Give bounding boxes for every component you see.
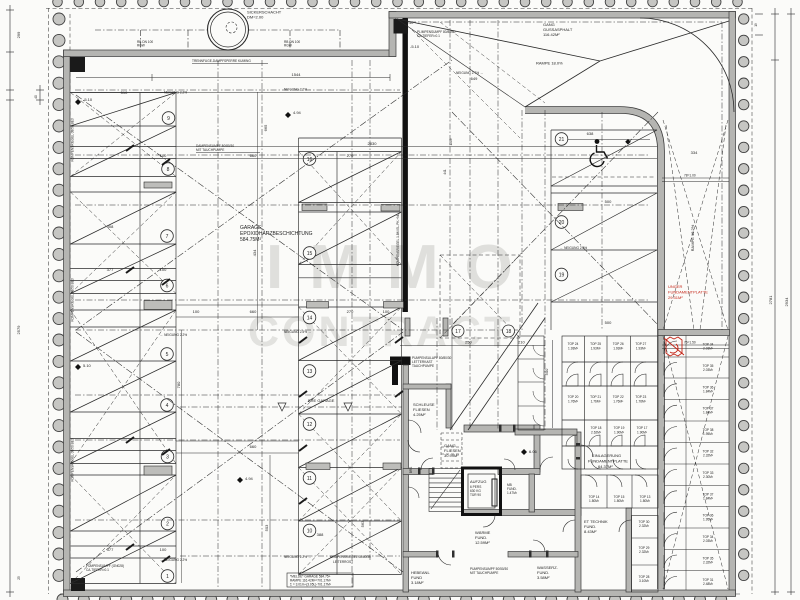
svg-text:6: 6 (166, 284, 169, 290)
svg-text:← NEIGUNG 2.5%: ← NEIGUNG 2.5% (560, 246, 587, 250)
svg-text:100: 100 (193, 309, 200, 314)
svg-text:RAMPE 18.2%: RAMPE 18.2% (690, 224, 695, 251)
svg-text:15: 15 (307, 251, 313, 257)
svg-text:2579: 2579 (16, 325, 21, 335)
svg-text:1.80M²: 1.80M² (614, 499, 624, 503)
svg-text:649: 649 (471, 76, 478, 81)
svg-text:660: 660 (250, 444, 257, 449)
svg-text:1.84M²: 1.84M² (703, 411, 713, 415)
svg-text:FUNDAMENTPLATTE: FUNDAMENTPLATTE (668, 290, 708, 295)
svg-text:299: 299 (16, 31, 21, 38)
svg-text:21: 21 (559, 137, 565, 143)
svg-text:TOP 22: TOP 22 (613, 395, 624, 399)
svg-text:11: 11 (307, 476, 312, 482)
svg-text:NEIGUNG 2.7% →: NEIGUNG 2.7% → (456, 71, 483, 75)
svg-text:TOP 17: TOP 17 (637, 426, 648, 430)
svg-text:1.93M²: 1.93M² (591, 347, 601, 351)
svg-text:KOMPENSRIEGEL 1.BM EL.PK.+NL: KOMPENSRIEGEL 1.BM EL.PK.+NL (396, 213, 400, 266)
svg-text:584.75M²: 584.75M² (240, 237, 261, 243)
svg-text:441: 441 (443, 169, 447, 175)
svg-text:388: 388 (317, 532, 324, 537)
svg-text:503: 503 (264, 524, 269, 531)
svg-text:76=1.50: 76=1.50 (684, 341, 696, 345)
svg-text:← NEIGUNG 2.2%: ← NEIGUNG 2.2% (160, 91, 187, 95)
svg-text:1.84M²: 1.84M² (703, 496, 713, 500)
svg-text:4.94: 4.94 (293, 110, 302, 115)
svg-text:KOMPENSRIEGEL 08/50 BE3: KOMPENSRIEGEL 08/50 BE3 (71, 118, 75, 162)
svg-text:1.76M²: 1.76M² (636, 400, 646, 404)
svg-text:3: 3 (166, 455, 169, 461)
svg-text:TOP 20: TOP 20 (568, 395, 579, 399)
svg-text:270: 270 (347, 309, 354, 314)
svg-text:1.80M²: 1.80M² (589, 499, 599, 503)
svg-text:1.90M²: 1.90M² (637, 431, 647, 435)
svg-text:TÜR 90: TÜR 90 (470, 493, 481, 497)
svg-text:40: 40 (34, 95, 38, 99)
svg-text:1219: 1219 (449, 138, 453, 145)
svg-text:510: 510 (121, 90, 128, 95)
svg-text:BRE GARAGE: BRE GARAGE (308, 398, 335, 403)
svg-text:434: 434 (252, 249, 257, 256)
svg-text:1.95M²: 1.95M² (703, 432, 713, 436)
svg-text:334: 334 (691, 150, 698, 155)
svg-text:RGW: RGW (284, 44, 292, 48)
svg-text:2.32M²: 2.32M² (703, 561, 713, 565)
svg-text:563: 563 (360, 520, 365, 527)
svg-text:29.31M²: 29.31M² (668, 295, 683, 300)
svg-text:3.10M²: 3.10M² (639, 579, 649, 583)
svg-text:1.47M²: 1.47M² (507, 491, 517, 495)
svg-text:6.06: 6.06 (529, 449, 538, 454)
svg-text:100: 100 (160, 267, 167, 272)
svg-text:TOP 21: TOP 21 (590, 395, 601, 399)
svg-text:4.94: 4.94 (245, 476, 254, 481)
svg-text:508: 508 (107, 224, 114, 229)
svg-text:CA.TIEFER=0.1: CA.TIEFER=0.1 (86, 568, 109, 572)
svg-text:← NEIGUNG 2.2%: ← NEIGUNG 2.2% (160, 558, 187, 562)
svg-text:2.32M²: 2.32M² (639, 524, 649, 528)
svg-text:LEITERROST: LEITERROST (333, 560, 353, 564)
svg-text:NEIGUNG 2.2% →: NEIGUNG 2.2% → (284, 555, 311, 559)
svg-text:DM=2.00: DM=2.00 (247, 15, 264, 20)
svg-text:3.58M²: 3.58M² (537, 575, 550, 580)
svg-text:100: 100 (160, 153, 167, 158)
svg-text:TOP 18: TOP 18 (591, 426, 602, 430)
svg-text:5.10: 5.10 (83, 363, 92, 368)
svg-text:← NEIGUNG 2.2%: ← NEIGUNG 2.2% (160, 333, 187, 337)
svg-text:18: 18 (506, 329, 512, 335)
svg-text:1.93M²: 1.93M² (636, 347, 646, 351)
svg-text:1544: 1544 (292, 72, 302, 77)
svg-text:500: 500 (605, 320, 612, 325)
svg-text:1.95M²: 1.95M² (703, 518, 713, 522)
svg-text:2: 2 (166, 522, 169, 528)
svg-text:10: 10 (307, 529, 313, 535)
svg-text:1.84M²: 1.84M² (703, 389, 713, 393)
svg-text:TOP 19: TOP 19 (614, 426, 625, 430)
svg-text:-5.10: -5.10 (83, 97, 93, 102)
svg-text:12: 12 (307, 422, 313, 428)
svg-text:MIT TAUCHPUMPE: MIT TAUCHPUMPE (470, 571, 498, 575)
svg-text:-5.10: -5.10 (410, 44, 420, 49)
svg-text:TAUCHPUMPE: TAUCHPUMPE (412, 364, 434, 368)
svg-text:EINLAGERUNG: EINLAGERUNG (592, 453, 621, 458)
svg-text:13: 13 (307, 369, 313, 375)
svg-text:377: 377 (107, 267, 114, 272)
svg-text:19: 19 (559, 273, 565, 279)
svg-text:BRS: BRS (409, 467, 413, 474)
svg-text:KOMPENSRIEGEL 08/50 BE3: KOMPENSRIEGEL 08/50 BE3 (71, 278, 75, 322)
svg-text:116.42M²: 116.42M² (543, 32, 560, 37)
svg-text:2781: 2781 (768, 295, 773, 305)
svg-text:AUFZUG: AUFZUG (470, 479, 486, 484)
svg-text:1.93M²: 1.93M² (568, 347, 578, 351)
svg-text:25: 25 (17, 576, 21, 580)
svg-text:2.48M²: 2.48M² (703, 582, 713, 586)
svg-text:1.93M²: 1.93M² (613, 347, 623, 351)
svg-text:2.03M²: 2.03M² (703, 368, 713, 372)
svg-text:19: 19 (754, 23, 758, 27)
svg-text:30.99M²: 30.99M² (444, 453, 459, 458)
svg-text:FUNDAMENTPLATTE: FUNDAMENTPLATTE (588, 459, 628, 464)
svg-text:8: 8 (167, 167, 170, 173)
svg-text:1.90M²: 1.90M² (614, 431, 624, 435)
svg-text:KOMPENSRIEGEL 08/50 BE3: KOMPENSRIEGEL 08/50 BE3 (71, 438, 75, 482)
svg-text:CA.TIEFER=0.1: CA.TIEFER=0.1 (417, 34, 440, 38)
svg-text:100: 100 (383, 309, 390, 314)
svg-text:8.43M²: 8.43M² (584, 529, 597, 534)
svg-text:TRENNFUGE-DAMPFSPERRE KUMING: TRENNFUGE-DAMPFSPERRE KUMING (192, 59, 251, 63)
svg-text:250: 250 (465, 340, 472, 345)
svg-text:TOP 23: TOP 23 (635, 395, 646, 399)
svg-text:500: 500 (605, 199, 612, 204)
svg-text:2934: 2934 (784, 297, 789, 307)
svg-text:TOP 26: TOP 26 (613, 342, 624, 346)
svg-text:78=1.00: 78=1.00 (684, 174, 696, 178)
svg-text:665: 665 (263, 124, 268, 131)
svg-text:660: 660 (250, 153, 257, 158)
svg-text:NEIGUNG 2.5% →: NEIGUNG 2.5% → (284, 330, 311, 334)
svg-text:1: 1 (166, 574, 169, 580)
svg-text:100: 100 (160, 547, 167, 552)
svg-text:TOP 25: TOP 25 (590, 342, 601, 346)
svg-text:TOP 27: TOP 27 (635, 342, 646, 346)
svg-text:240: 240 (407, 20, 414, 25)
svg-text:500: 500 (544, 368, 549, 375)
svg-text:NEIGUNG 2.2% →: NEIGUNG 2.2% → (284, 88, 311, 92)
svg-text:Σ = 3.01m÷(3.05L)-701.17M²: Σ = 3.01m÷(3.05L)-701.17M² (290, 583, 331, 587)
svg-text:2830: 2830 (368, 141, 378, 146)
svg-text:2.32M²: 2.32M² (639, 550, 649, 554)
svg-text:RGW: RGW (137, 44, 145, 48)
svg-text:1.76M²: 1.76M² (591, 400, 601, 404)
svg-text:2.03M²: 2.03M² (703, 539, 713, 543)
svg-text:270: 270 (347, 153, 354, 158)
svg-text:9: 9 (167, 116, 170, 122)
svg-text:377: 377 (107, 547, 114, 552)
svg-text:4: 4 (166, 403, 169, 409)
svg-text:KOMPENSRIEGEL 08/60/30: KOMPENSRIEGEL 08/60/30 (330, 555, 371, 559)
svg-text:3.18M²: 3.18M² (411, 580, 424, 585)
svg-text:1.76M²: 1.76M² (613, 400, 623, 404)
svg-text:210: 210 (518, 340, 525, 345)
svg-text:12.59M²: 12.59M² (475, 540, 490, 545)
svg-text:1.80M²: 1.80M² (640, 499, 650, 503)
svg-text:TOP 24: TOP 24 (568, 342, 579, 346)
svg-text:64.37M²: 64.37M² (598, 464, 613, 469)
svg-text:780: 780 (176, 381, 181, 388)
svg-text:17: 17 (455, 329, 461, 335)
svg-text:5: 5 (166, 352, 169, 358)
svg-text:2.30M²: 2.30M² (703, 475, 713, 479)
svg-text:1.76M²: 1.76M² (568, 400, 578, 404)
svg-text:2.32M²: 2.32M² (703, 454, 713, 458)
svg-text:MIT TAUCHPUMPE: MIT TAUCHPUMPE (196, 148, 224, 152)
svg-text:4.25M²: 4.25M² (413, 412, 426, 417)
svg-text:RAMPE 18.0%: RAMPE 18.0% (536, 61, 563, 66)
svg-text:UNGER: UNGER (668, 284, 683, 289)
svg-text:638: 638 (587, 131, 594, 136)
svg-text:14: 14 (307, 316, 313, 322)
svg-text:2.62M²: 2.62M² (591, 431, 601, 435)
svg-text:7: 7 (166, 234, 169, 240)
svg-text:660: 660 (250, 309, 257, 314)
